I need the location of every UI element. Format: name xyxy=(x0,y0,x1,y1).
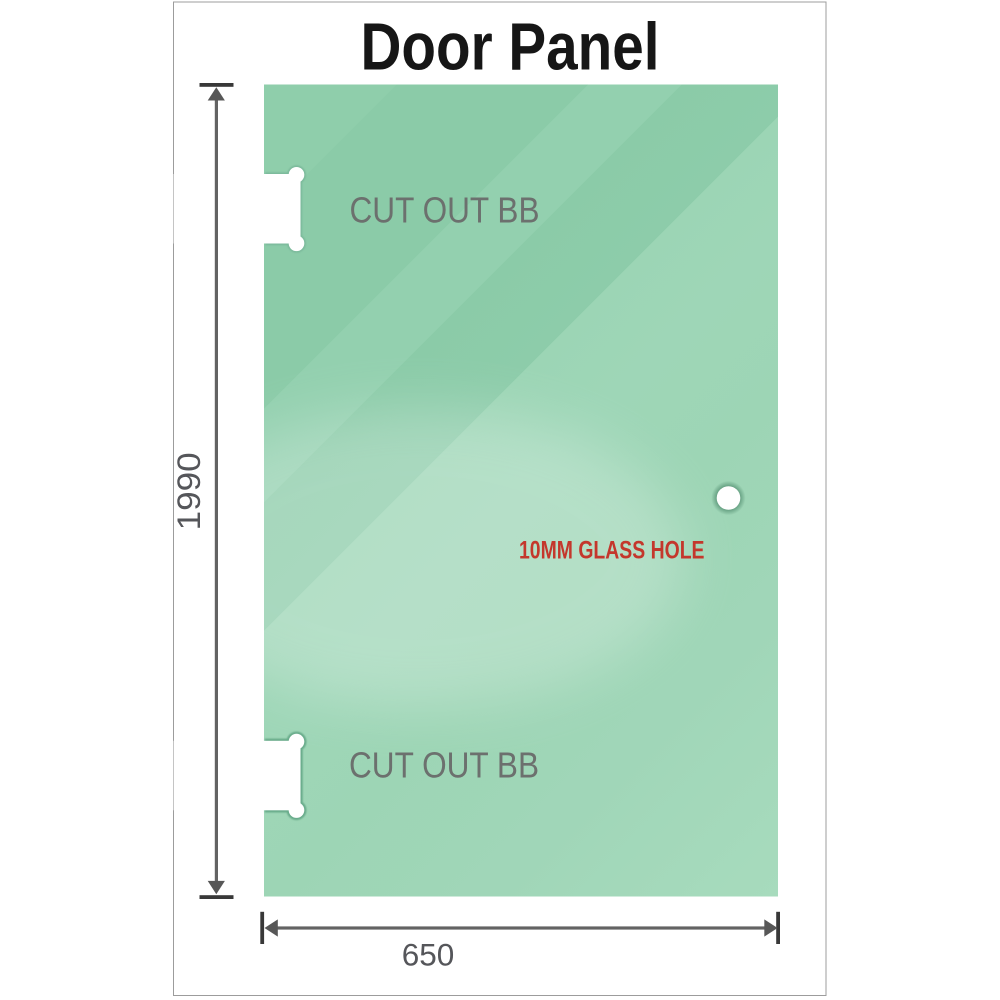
svg-text:CUT OUT BB: CUT OUT BB xyxy=(350,190,540,231)
svg-text:1990: 1990 xyxy=(171,452,207,530)
svg-text:CUT OUT BB: CUT OUT BB xyxy=(349,744,539,785)
svg-text:650: 650 xyxy=(402,937,455,973)
svg-text:Door Panel: Door Panel xyxy=(361,11,660,85)
svg-text:10MM GLASS HOLE: 10MM GLASS HOLE xyxy=(519,537,705,565)
